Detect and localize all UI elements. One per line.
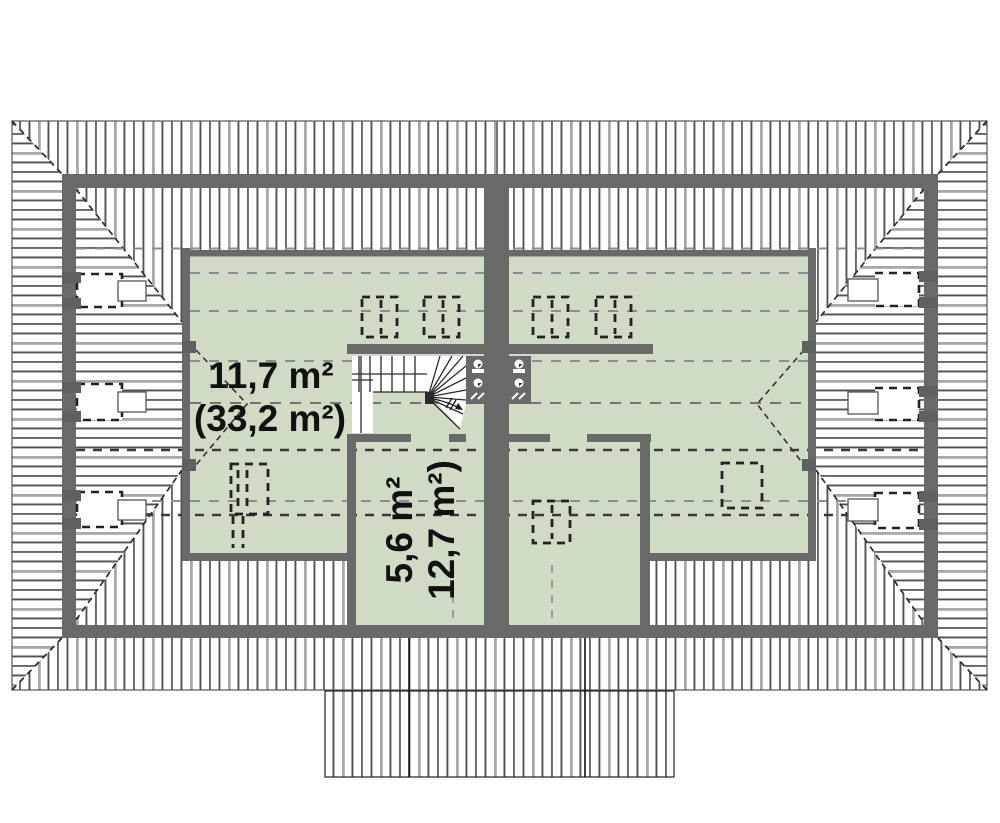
- svg-text:(33,2 m²): (33,2 m²): [194, 398, 346, 439]
- svg-text:11,7 m²: 11,7 m²: [208, 355, 333, 396]
- svg-text:12,7 m²): 12,7 m²): [421, 460, 462, 600]
- svg-text:5,6 m²: 5,6 m²: [379, 477, 420, 584]
